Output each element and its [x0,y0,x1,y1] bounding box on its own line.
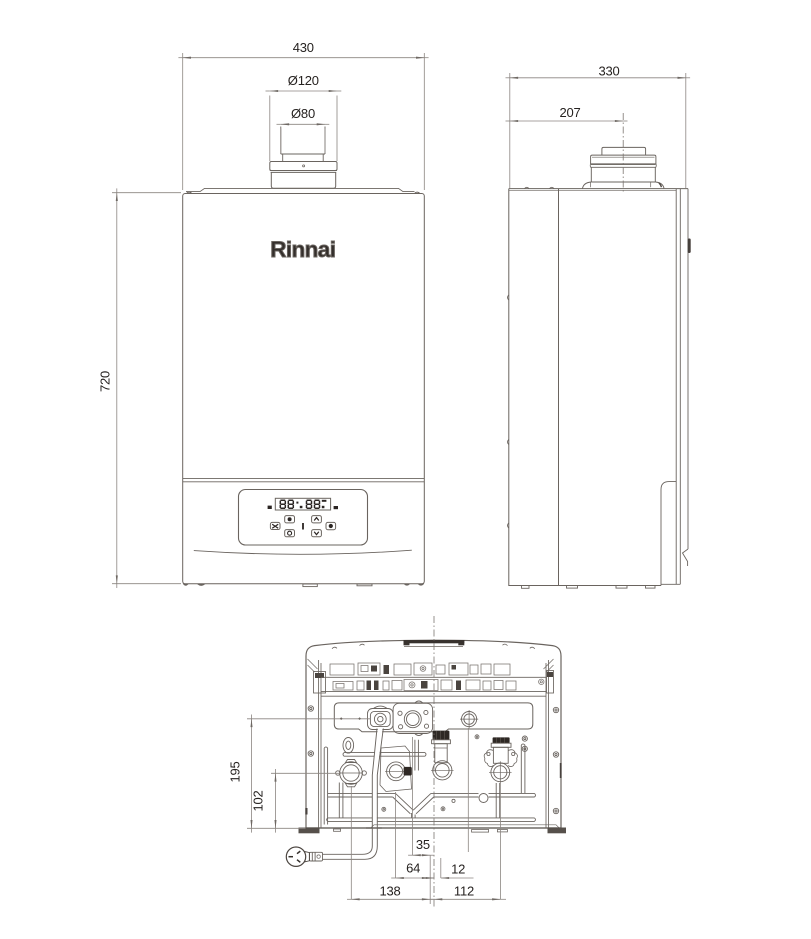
svg-text:195: 195 [227,761,242,782]
svg-text:207: 207 [559,105,580,120]
svg-text:64: 64 [406,860,420,875]
svg-text:330: 330 [598,63,619,78]
svg-text:430: 430 [293,40,314,55]
svg-text:720: 720 [98,371,113,392]
svg-text:12: 12 [451,861,465,876]
svg-text:138: 138 [379,883,400,898]
svg-text:102: 102 [251,790,266,811]
svg-text:Ø120: Ø120 [288,73,319,88]
svg-text:35: 35 [416,837,430,852]
svg-text:112: 112 [454,883,474,898]
svg-text:Rinnai: Rinnai [270,237,335,262]
svg-text:Ø80: Ø80 [291,106,315,121]
